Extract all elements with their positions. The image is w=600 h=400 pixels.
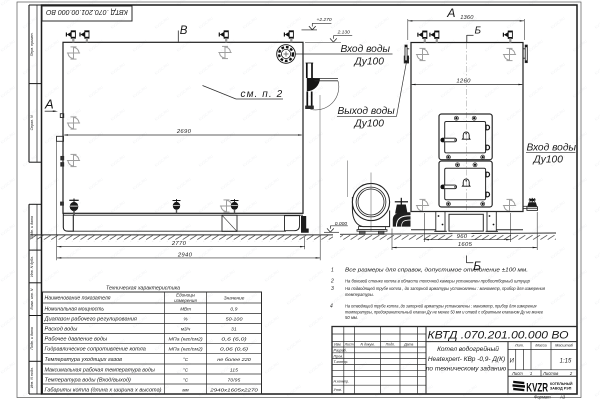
svg-text:Котел водогрейный: Котел водогрейный — [437, 345, 499, 353]
svg-text:м3/ч: м3/ч — [181, 327, 191, 332]
svg-text:2.130: 2.130 — [337, 30, 351, 36]
svg-text:А: А — [446, 6, 455, 20]
svg-text:Ду100: Ду100 — [354, 56, 385, 67]
svg-text:В: В — [180, 25, 188, 37]
svg-text:Вход воды: Вход воды — [527, 142, 577, 153]
svg-text:Рабочее давление воды: Рабочее давление воды — [45, 337, 108, 343]
svg-text:Масштаб: Масштаб — [555, 344, 574, 348]
svg-text:Перв. примен.: Перв. примен. — [30, 32, 34, 56]
svg-text:Диапазон рабочего регулировани: Диапазон рабочего регулирования — [43, 317, 137, 323]
svg-text:Значение: Значение — [224, 296, 245, 301]
svg-text:температуры.: температуры. — [345, 292, 374, 297]
svg-text:1: 1 — [331, 267, 334, 273]
svg-text:Подп. и дата: Подп. и дата — [30, 327, 34, 350]
svg-text:115: 115 — [230, 367, 238, 373]
svg-text:70/95: 70/95 — [228, 377, 241, 383]
svg-text:На подводящей трубе котла ,: На подводящей трубе котла , до запорной … — [345, 285, 545, 291]
svg-text:Гидравлическое сопротивление к: Гидравлическое сопротивление котла — [45, 347, 147, 353]
svg-text:КОТЕЛЬНЫЙ: КОТЕЛЬНЫЙ — [550, 382, 573, 386]
svg-text:Масса: Масса — [535, 344, 546, 348]
svg-text:МВт: МВт — [180, 306, 191, 311]
svg-text:На боковой стенке котла в обла: На боковой стенке котла в области топочн… — [345, 277, 530, 283]
svg-text:1260: 1260 — [456, 79, 471, 85]
svg-text:Т.контр.: Т.контр. — [334, 360, 349, 364]
svg-text:Инв. N подл.: Инв. N подл. — [30, 367, 34, 388]
svg-text:мм: мм — [182, 387, 189, 392]
svg-text:Разраб.: Разраб. — [334, 349, 347, 353]
svg-text:Номинальная мощность: Номинальная мощность — [45, 306, 105, 312]
svg-text:Дата: Дата — [403, 343, 413, 347]
svg-text:Ду100: Ду100 — [533, 155, 564, 166]
svg-text:Выход воды: Выход воды — [338, 106, 396, 117]
svg-text:Все размеры для справок, допус: Все размеры для справок, допустимое откл… — [345, 267, 528, 273]
svg-text:Справ. N: Справ. N — [30, 115, 34, 130]
svg-text:Техническая характеристика: Техническая характеристика — [106, 286, 180, 292]
svg-text:КВТД .070.201.00.000 ВО: КВТД .070.201.00.000 ВО — [428, 329, 569, 341]
svg-text:МПа (кгс/см2): МПа (кгс/см2) — [169, 347, 204, 352]
svg-text:не более 220: не более 220 — [217, 357, 251, 363]
svg-text:Температура воды (Вход/выход): Температура воды (Вход/выход) — [45, 377, 132, 383]
svg-text:Изм.: Изм. — [334, 343, 341, 347]
svg-text:Лит.: Лит. — [514, 344, 524, 348]
svg-text:Расход воды: Расход воды — [45, 327, 78, 333]
svg-text:3: 3 — [331, 286, 334, 292]
svg-text:КВТД .070.201.00.000 ВО: КВТД .070.201.00.000 ВО — [46, 8, 128, 15]
svg-text:Взам. инв. N: Взам. инв. N — [30, 288, 34, 309]
svg-text:Лист: Лист — [344, 343, 354, 347]
svg-text:Подп.: Подп. — [386, 343, 395, 347]
svg-text:2: 2 — [330, 278, 334, 284]
svg-text:Лист: Лист — [511, 371, 523, 376]
svg-text:Листов: Листов — [542, 371, 559, 376]
svg-text:Б: Б — [475, 26, 482, 37]
svg-text:измерения: измерения — [174, 298, 197, 303]
svg-text:0,6 (6,0): 0,6 (6,0) — [221, 337, 247, 343]
svg-text:Габариты котла (длина х ширина: Габариты котла (длина х ширина х высота) — [45, 387, 162, 393]
svg-text:°С: °С — [183, 367, 189, 372]
svg-text:50 мм.: 50 мм. — [345, 315, 358, 320]
svg-text:Вход воды: Вход воды — [341, 44, 391, 55]
svg-text:На отводящей трубе котла ,до з: На отводящей трубе котла ,до запорной ар… — [345, 302, 537, 308]
svg-text:°С: °С — [183, 357, 189, 362]
svg-text:см. п. 2: см. п. 2 — [241, 89, 284, 100]
svg-text:Н.контр.: Н.контр. — [334, 380, 350, 384]
svg-text:МПа (кгс/см2): МПа (кгс/см2) — [169, 337, 204, 342]
svg-text:0,9: 0,9 — [230, 306, 237, 312]
svg-text:4: 4 — [330, 303, 333, 309]
svg-text:%: % — [184, 317, 188, 322]
svg-text:Heatexpert- КВр -0,9- Д(К): Heatexpert- КВр -0,9- Д(К) — [428, 356, 505, 363]
svg-text:температуры, предохранительный: температуры, предохранительный клапан Ду… — [345, 308, 543, 314]
svg-text:50-100: 50-100 — [226, 317, 243, 323]
svg-text:31: 31 — [231, 327, 237, 333]
svg-text:N докум.: N докум. — [361, 343, 375, 347]
svg-text:+2.270: +2.270 — [317, 17, 332, 23]
svg-text:Формат: Формат — [534, 395, 551, 400]
svg-text:2940х1605х2270: 2940х1605х2270 — [209, 387, 258, 393]
svg-text:А3: А3 — [559, 395, 566, 400]
svg-text:1:15: 1:15 — [560, 359, 572, 365]
svg-text:960: 960 — [457, 234, 468, 240]
svg-text:И: И — [510, 359, 515, 365]
svg-text:ЗАВОД РЭП: ЗАВОД РЭП — [550, 387, 572, 391]
svg-text:Ду100: Ду100 — [354, 119, 385, 130]
svg-text:°С: °С — [183, 377, 189, 382]
svg-text:Максимальная рабочая температу: Максимальная рабочая температура воды — [45, 367, 156, 373]
svg-text:2940: 2940 — [177, 252, 193, 258]
svg-text:1: 1 — [530, 371, 532, 376]
svg-text:Инв. N дубл.: Инв. N дубл. — [30, 256, 34, 277]
svg-text:А: А — [44, 97, 54, 112]
svg-text:0,06 (0,6): 0,06 (0,6) — [220, 347, 249, 353]
svg-text:2690: 2690 — [176, 129, 192, 135]
svg-text:2770: 2770 — [171, 241, 187, 247]
svg-text:Пров.: Пров. — [334, 354, 344, 358]
svg-text:Утв.: Утв. — [334, 388, 342, 392]
svg-text:по техническому заданию: по техническому заданию — [426, 365, 506, 373]
svg-text:Температура уходящих газов: Температура уходящих газов — [45, 357, 123, 363]
svg-text:Наименование показателя: Наименование показателя — [45, 296, 111, 302]
svg-text:KVZR: KVZR — [526, 380, 548, 394]
svg-text:1605: 1605 — [458, 242, 473, 248]
svg-text:1360: 1360 — [460, 15, 474, 21]
